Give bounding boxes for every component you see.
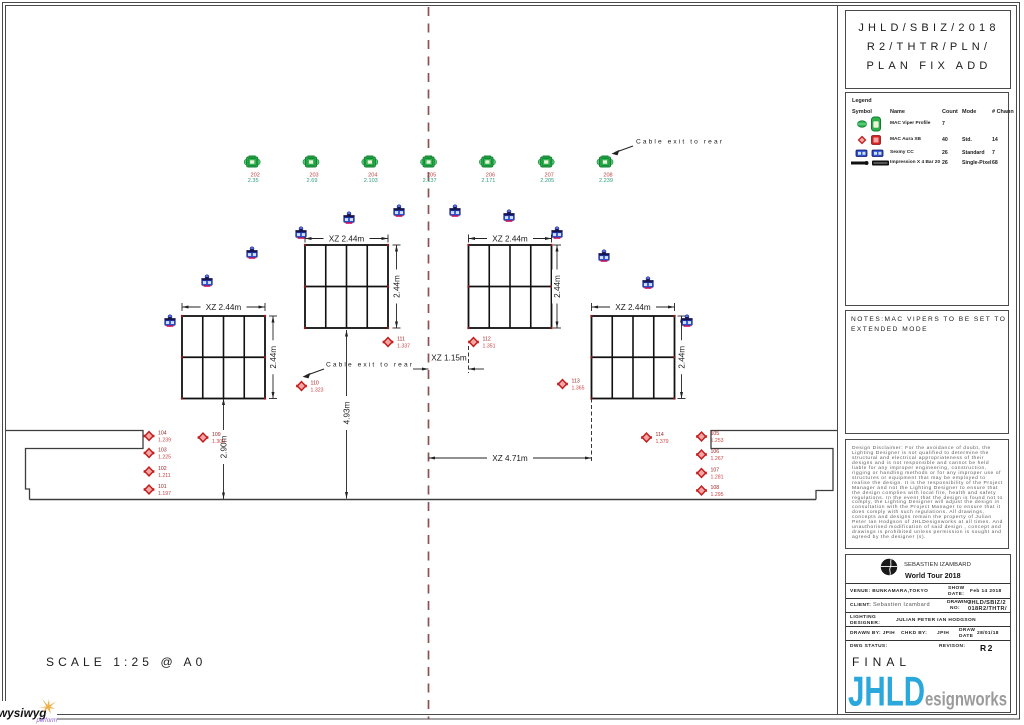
svg-text:1.225: 1.225	[158, 455, 171, 461]
svg-text:110: 110	[311, 381, 319, 387]
svg-text:102: 102	[158, 466, 167, 472]
svg-text:114: 114	[656, 432, 664, 438]
svg-text:2.44m: 2.44m	[553, 275, 562, 298]
svg-text:112: 112	[483, 337, 491, 343]
svg-text:1.253: 1.253	[711, 438, 724, 444]
svg-text:2.137: 2.137	[423, 178, 437, 184]
svg-text:2.35: 2.35	[248, 178, 259, 184]
svg-text:1.281: 1.281	[711, 475, 724, 481]
svg-text:104: 104	[158, 431, 167, 437]
svg-text:111: 111	[397, 337, 405, 343]
svg-text:103: 103	[158, 448, 167, 454]
svg-text:JHLD: JHLD	[848, 668, 925, 710]
svg-text:1.309: 1.309	[212, 439, 225, 445]
svg-text:105: 105	[711, 431, 720, 437]
svg-text:1.365: 1.365	[572, 386, 585, 392]
svg-text:2.69: 2.69	[307, 178, 318, 184]
svg-text:esignworks: esignworks	[925, 688, 1007, 710]
svg-text:XZ 2.44m: XZ 2.44m	[492, 235, 528, 244]
svg-text:1.239: 1.239	[158, 438, 171, 444]
svg-text:2.239: 2.239	[599, 178, 613, 184]
svg-text:1.295: 1.295	[711, 492, 724, 498]
svg-text:1.197: 1.197	[158, 491, 171, 497]
svg-text:1.323: 1.323	[311, 388, 324, 394]
svg-text:XZ 1.15m: XZ 1.15m	[431, 354, 467, 363]
svg-text:2.44m: 2.44m	[678, 346, 687, 369]
svg-text:1.337: 1.337	[397, 344, 410, 350]
svg-text:SCALE 1:25 @ A0: SCALE 1:25 @ A0	[46, 655, 206, 669]
svg-text:Cable exit to rear: Cable exit to rear	[326, 362, 414, 369]
svg-text:1.211: 1.211	[158, 473, 171, 479]
svg-text:109: 109	[212, 432, 221, 438]
svg-text:perform: perform	[36, 718, 58, 724]
svg-text:1.351: 1.351	[483, 344, 496, 350]
svg-text:4.93m: 4.93m	[343, 401, 352, 424]
svg-text:1.267: 1.267	[711, 456, 724, 462]
svg-text:2.205: 2.205	[540, 178, 554, 184]
svg-text:XZ 2.44m: XZ 2.44m	[329, 235, 365, 244]
svg-text:Cable exit to rear: Cable exit to rear	[636, 139, 724, 146]
svg-text:1.379: 1.379	[656, 439, 669, 445]
svg-text:108: 108	[711, 485, 720, 491]
svg-text:2.44m: 2.44m	[269, 346, 278, 369]
svg-text:101: 101	[158, 484, 167, 490]
svg-text:XZ 2.44m: XZ 2.44m	[206, 303, 242, 312]
svg-text:113: 113	[572, 379, 580, 385]
svg-text:2.171: 2.171	[481, 178, 495, 184]
svg-text:107: 107	[711, 468, 720, 474]
svg-text:2.103: 2.103	[364, 178, 378, 184]
svg-text:XZ 4.71m: XZ 4.71m	[492, 454, 528, 463]
svg-text:XZ 2.44m: XZ 2.44m	[615, 303, 651, 312]
svg-text:106: 106	[711, 449, 720, 455]
svg-text:2.44m: 2.44m	[393, 275, 402, 298]
